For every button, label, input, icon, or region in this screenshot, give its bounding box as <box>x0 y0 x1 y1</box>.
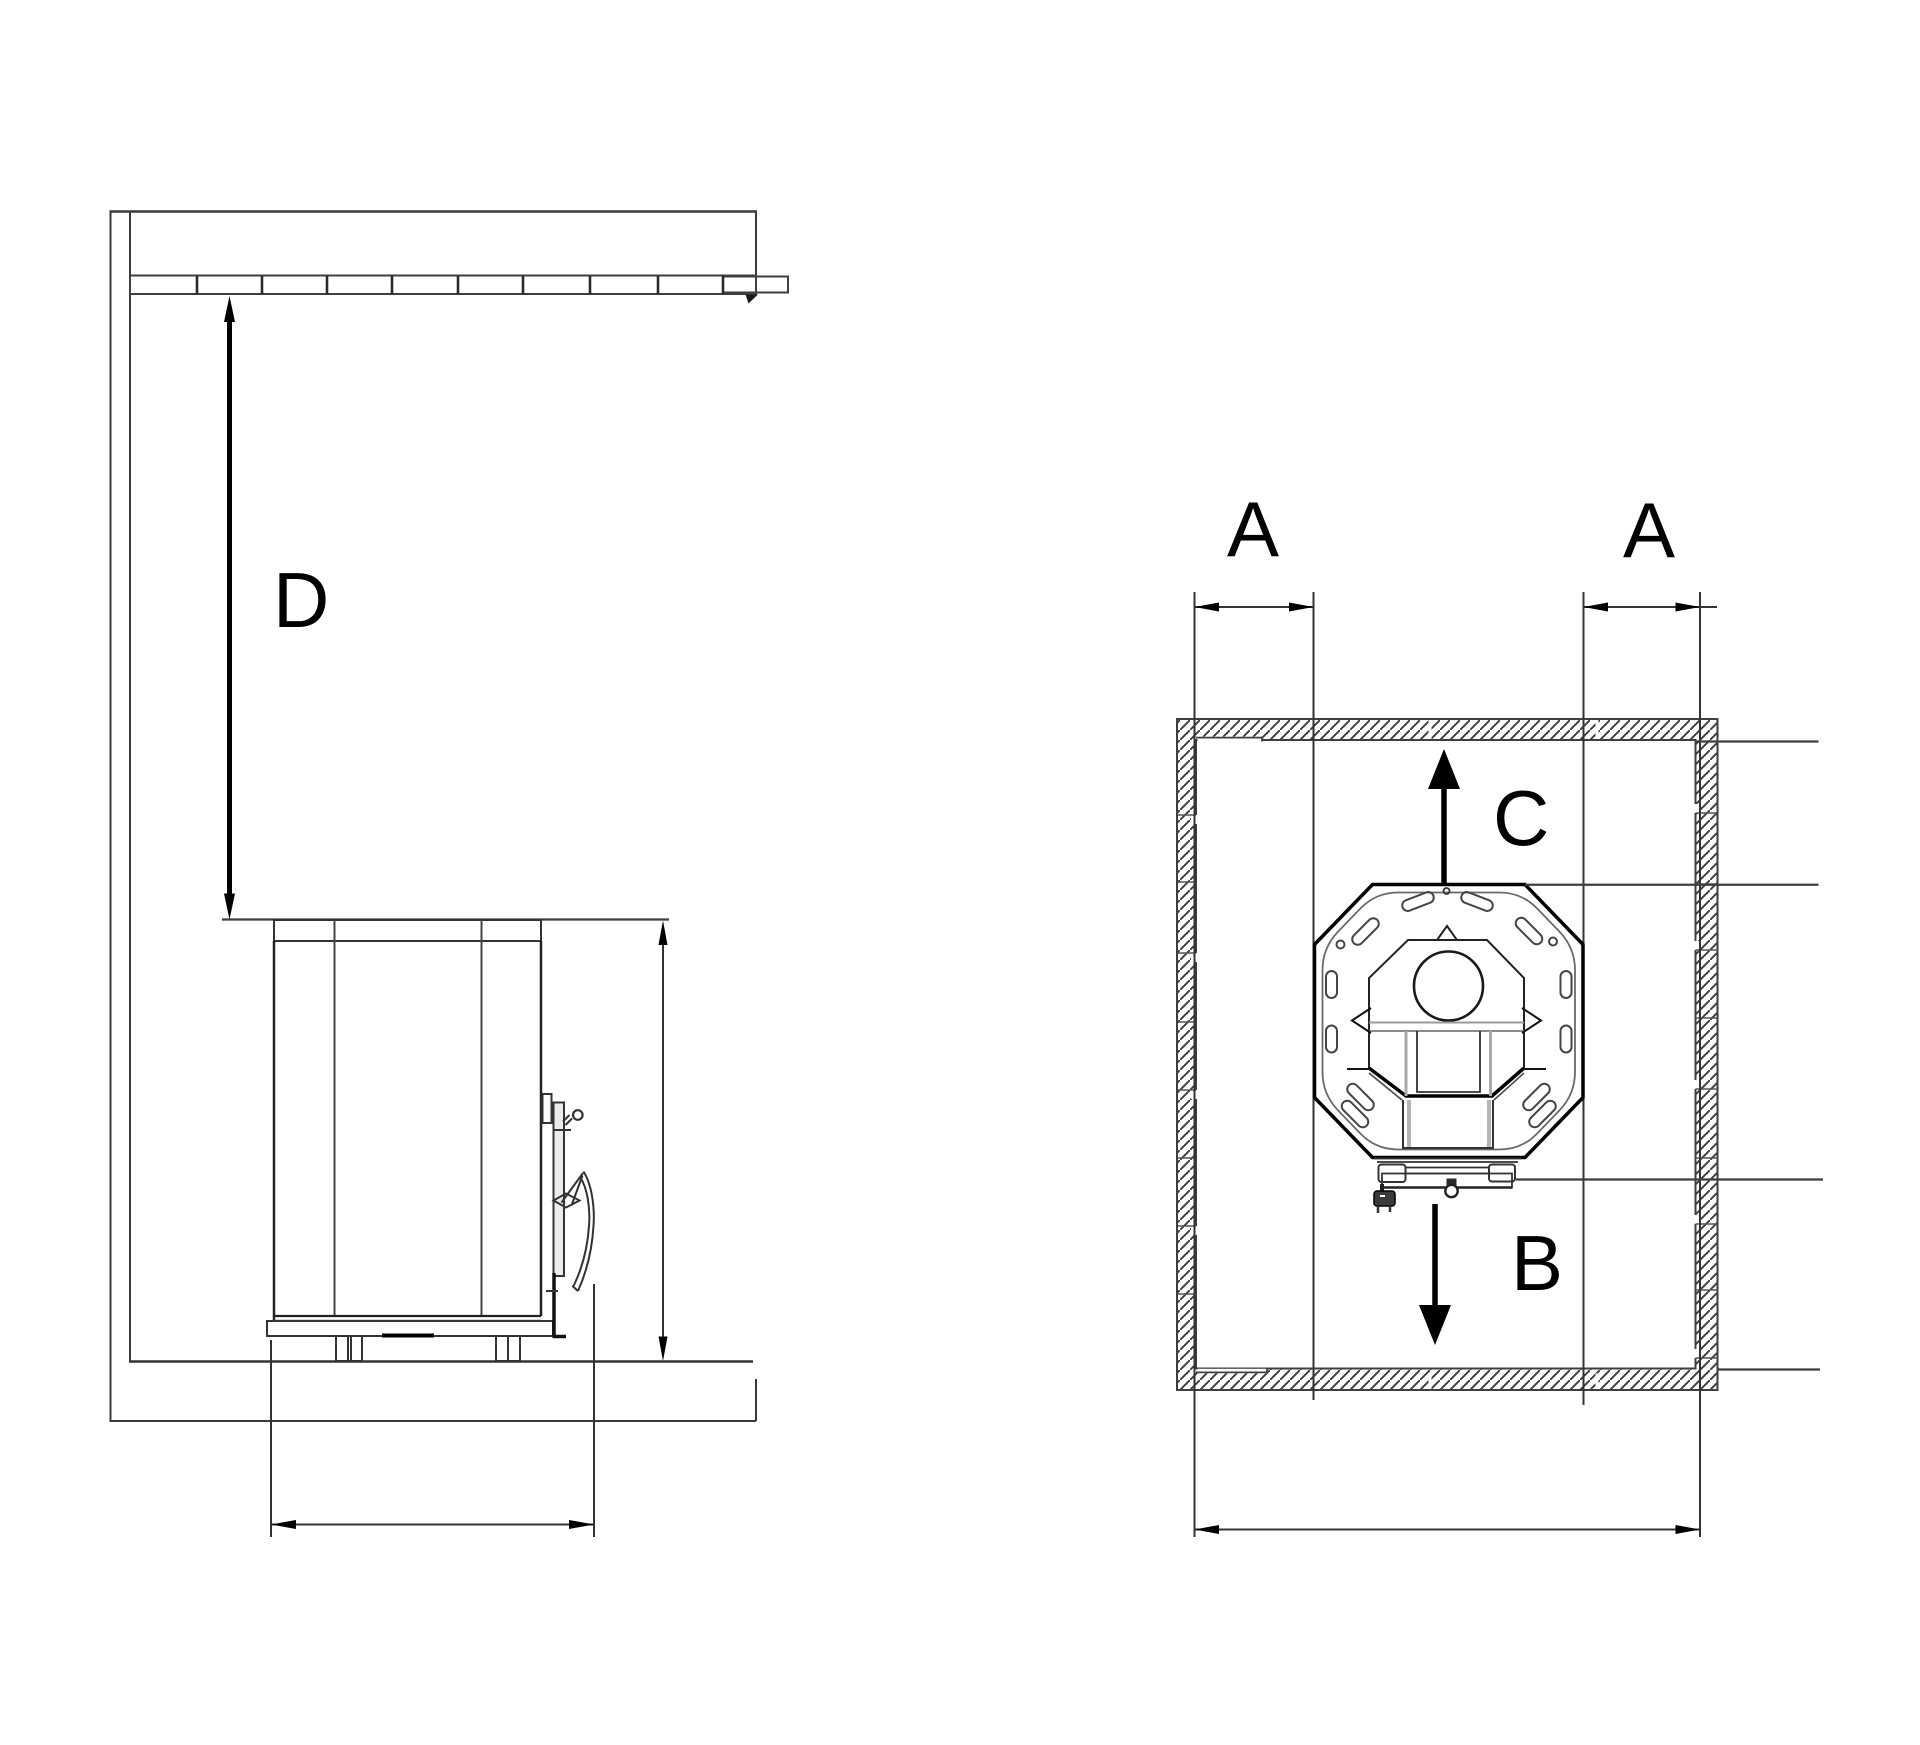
svg-text:D: D <box>273 556 329 644</box>
svg-text:C: C <box>1493 774 1549 862</box>
svg-text:B: B <box>1511 1219 1563 1307</box>
svg-text:A: A <box>1623 486 1675 574</box>
svg-text:A: A <box>1227 485 1279 573</box>
